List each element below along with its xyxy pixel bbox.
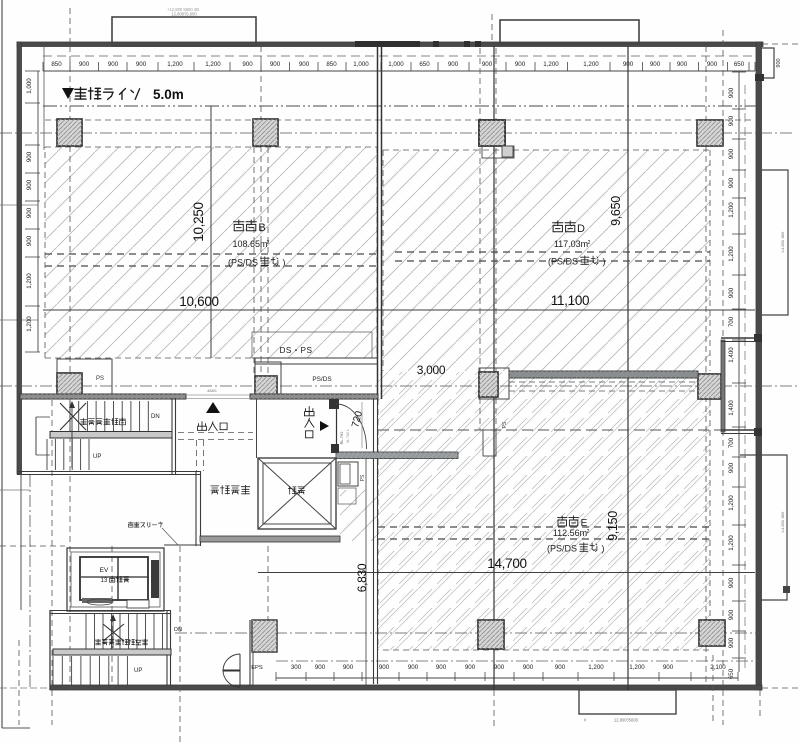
svg-text:1,200: 1,200 [26, 316, 33, 332]
svg-text:850: 850 [51, 61, 62, 68]
svg-text:(PS/DS: (PS/DS [548, 257, 578, 267]
svg-text:DN: DN [174, 627, 182, 633]
svg-text:900: 900 [728, 637, 735, 648]
svg-text:112.56m: 112.56m [553, 528, 587, 538]
svg-text:PS: PS [360, 474, 366, 481]
svg-text:1,200: 1,200 [205, 61, 221, 68]
svg-text:900: 900 [436, 664, 447, 671]
svg-text:1,000: 1,000 [388, 61, 404, 68]
svg-text:6,830: 6,830 [355, 563, 369, 592]
svg-text:900: 900 [728, 115, 735, 126]
svg-text:1,200: 1,200 [543, 61, 559, 68]
svg-text:900: 900 [515, 61, 526, 68]
svg-text:5.0m: 5.0m [153, 87, 184, 102]
svg-text:900: 900 [270, 61, 281, 68]
svg-text:900: 900 [663, 664, 674, 671]
svg-text:12,800ﾗ5600: 12,800ﾗ5600 [614, 718, 639, 723]
svg-text:900: 900 [677, 61, 688, 68]
svg-text:900: 900 [108, 61, 119, 68]
svg-text:10,600: 10,600 [179, 294, 219, 309]
svg-text:#L.762 L: #L.762 L [346, 429, 350, 443]
svg-text:L4.28X 38X: L4.28X 38X [780, 511, 785, 532]
svg-text:DN: DN [151, 414, 160, 420]
svg-text:11,100: 11,100 [551, 293, 590, 308]
svg-text:900: 900 [728, 287, 735, 298]
svg-text:900: 900 [728, 177, 735, 188]
svg-text:2: 2 [587, 529, 590, 535]
svg-text:B: B [258, 222, 265, 234]
svg-text:900: 900 [728, 87, 735, 98]
svg-text:900: 900 [315, 664, 326, 671]
svg-text:900: 900 [299, 61, 310, 68]
svg-text:+12,800 5600 4B: +12,800 5600 4B [167, 7, 199, 12]
svg-text:10,250: 10,250 [191, 202, 206, 242]
svg-text:14,700: 14,700 [487, 556, 527, 571]
svg-text:900: 900 [242, 61, 253, 68]
svg-text:108.65m: 108.65m [232, 239, 267, 249]
svg-text:1,000: 1,000 [26, 78, 33, 94]
svg-text:650: 650 [734, 61, 745, 68]
svg-text:(PS/DS: (PS/DS [228, 258, 258, 268]
svg-text:900: 900 [465, 664, 476, 671]
svg-text:1,000: 1,000 [353, 61, 369, 68]
svg-text:1,200: 1,200 [629, 664, 645, 671]
svg-text:1,200: 1,200 [728, 202, 735, 218]
svg-text:UP: UP [93, 454, 101, 460]
svg-text:900: 900 [26, 207, 33, 218]
svg-text:EV: EV [100, 567, 109, 574]
svg-text:(PS/DS: (PS/DS [547, 544, 577, 554]
svg-text:700: 700 [728, 316, 735, 327]
svg-text:1,200: 1,200 [728, 246, 735, 262]
svg-text:900: 900 [728, 462, 735, 473]
svg-text:900: 900 [728, 609, 735, 620]
svg-text:): ) [603, 257, 606, 267]
svg-text:13: 13 [101, 578, 108, 584]
svg-text:1,200: 1,200 [728, 495, 735, 511]
svg-text:1,200: 1,200 [583, 61, 599, 68]
svg-text:UP: UP [134, 668, 142, 674]
svg-text:): ) [602, 544, 605, 554]
svg-text:900: 900 [79, 61, 90, 68]
svg-text:900: 900 [26, 151, 33, 162]
svg-text:900: 900 [494, 664, 505, 671]
svg-text:300: 300 [291, 664, 302, 671]
svg-text:1,200: 1,200 [26, 273, 33, 289]
svg-text:900: 900 [343, 664, 354, 671]
svg-text:1,200: 1,200 [728, 535, 735, 551]
svg-text:650: 650 [728, 668, 735, 679]
svg-text:PS: PS [96, 376, 104, 382]
svg-text:D: D [577, 223, 585, 235]
svg-text:117.03m: 117.03m [554, 239, 588, 249]
svg-text:3,000: 3,000 [417, 363, 446, 377]
svg-text:L4.28X 38X: L4.28X 38X [780, 231, 785, 252]
svg-text:9,650: 9,650 [609, 196, 623, 226]
svg-text:DS・PS: DS・PS [280, 346, 313, 355]
svg-text:1,400: 1,400 [728, 400, 735, 416]
svg-text:9,150: 9,150 [606, 511, 620, 541]
svg-text:900: 900 [448, 61, 459, 68]
svg-text:900: 900 [26, 235, 33, 246]
svg-text:PS: PS [502, 421, 508, 428]
svg-text:1,400: 1,400 [728, 347, 735, 363]
svg-text:900: 900 [707, 61, 718, 68]
svg-text:900: 900 [523, 664, 534, 671]
svg-text:900: 900 [776, 58, 782, 67]
svg-text:1,200: 1,200 [588, 664, 604, 671]
svg-text:2: 2 [588, 240, 591, 246]
svg-text:1,200: 1,200 [167, 61, 183, 68]
svg-text:900: 900 [482, 61, 493, 68]
svg-text:900: 900 [650, 61, 661, 68]
svg-text:PS/DS: PS/DS [312, 376, 331, 383]
svg-text:900: 900 [728, 148, 735, 159]
svg-text:850: 850 [326, 61, 337, 68]
svg-text:488/1: 488/1 [207, 388, 218, 393]
svg-text:650: 650 [419, 61, 430, 68]
svg-text:900: 900 [26, 179, 33, 190]
svg-text:900: 900 [555, 664, 566, 671]
svg-text:900: 900 [728, 577, 735, 588]
svg-text:700: 700 [728, 437, 735, 448]
svg-text:RL.762: RL.762 [339, 431, 344, 445]
svg-text:12,800ﾗ5,600: 12,800ﾗ5,600 [171, 12, 197, 17]
svg-text:900: 900 [408, 664, 419, 671]
svg-text:900: 900 [136, 61, 147, 68]
svg-text:900: 900 [379, 664, 390, 671]
svg-text:): ) [283, 258, 286, 268]
svg-text:2: 2 [267, 240, 270, 246]
